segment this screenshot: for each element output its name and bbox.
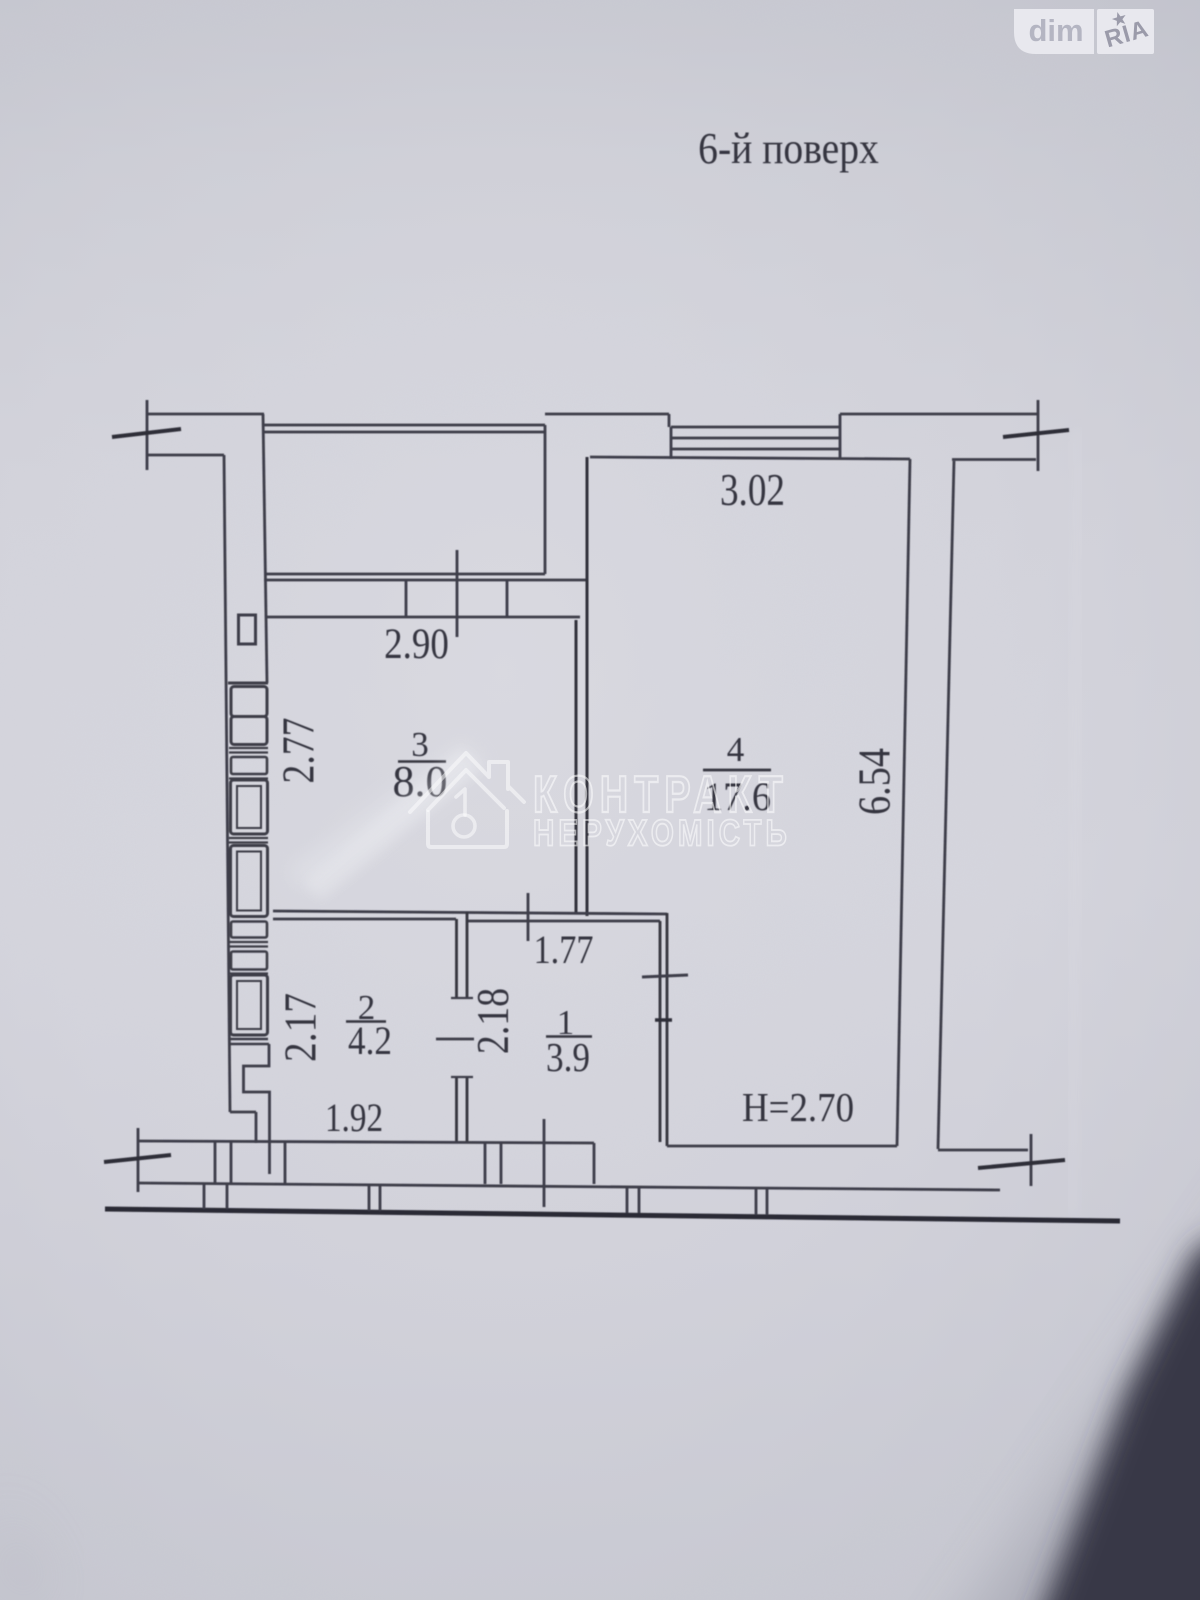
svg-text:6-й поверх: 6-й поверх [698,125,879,173]
svg-text:1.92: 1.92 [325,1095,383,1140]
svg-text:2.17: 2.17 [276,993,326,1062]
svg-text:4.2: 4.2 [348,1019,392,1064]
svg-text:4: 4 [727,730,745,769]
svg-text:dim: dim [1028,13,1083,48]
svg-text:1.77: 1.77 [534,929,594,973]
svg-text:3.02: 3.02 [720,465,785,515]
svg-text:6.54: 6.54 [851,748,901,815]
svg-text:3.9: 3.9 [546,1036,590,1081]
svg-text:2.18: 2.18 [468,988,518,1054]
svg-text:2.90: 2.90 [384,619,449,667]
svg-text:2.77: 2.77 [273,718,323,784]
svg-text:H=2.70: H=2.70 [742,1085,854,1130]
svg-text:НЕРУХОМІСТЬ: НЕРУХОМІСТЬ [533,813,791,854]
